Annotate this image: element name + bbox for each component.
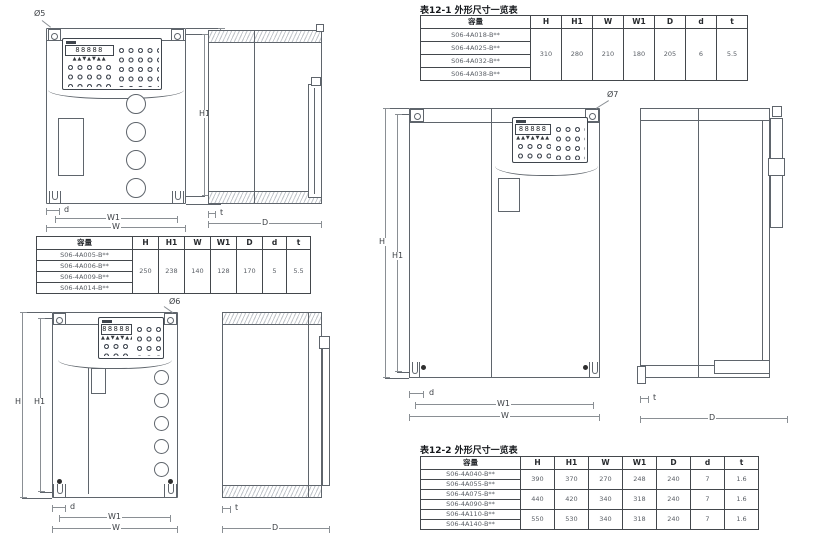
mounting-slot (409, 362, 420, 378)
column-header: 容量 (37, 237, 133, 250)
value-cell: 420 (555, 490, 589, 510)
keypad-buttons-right (134, 324, 161, 356)
value-cell: 205 (655, 29, 686, 81)
dim-label-d: d (428, 389, 435, 397)
seven-segment-display: 88888 (515, 124, 551, 135)
extension-line (40, 492, 54, 493)
back-tab (772, 106, 782, 117)
value-cell: 250 (133, 250, 159, 294)
cover-split-line (308, 312, 309, 498)
column-header: H1 (555, 457, 589, 470)
dim-label-w: W (111, 524, 121, 532)
value-cell: 370 (555, 470, 589, 490)
side-outline (640, 108, 770, 378)
value-cell: 340 (589, 490, 623, 510)
extension-line (397, 372, 409, 373)
dim-label-w: W (500, 412, 510, 420)
keypad-panel: 88888 ▲▲▼▲▼▲▲ (98, 317, 164, 359)
dim-label-t: t (652, 394, 657, 402)
value-cell: 128 (211, 250, 237, 294)
keypad-buttons-right (116, 45, 159, 87)
table-row: S06-4A110-B** 550 530 340 318 240 7 1.6 (421, 510, 759, 520)
manual-page: Ø5 88888 ▲▲▼▲▼▲▲ H1 H (0, 0, 820, 542)
model-cell: S06-4A040-B** (421, 470, 521, 480)
dim-label-depth: D (708, 414, 716, 422)
mounting-rail (308, 84, 322, 198)
top-band (209, 31, 321, 43)
table-row: S06-4A005-B** 250 238 140 128 170 5 5.5 (37, 250, 311, 261)
value-cell: 5 (263, 250, 287, 294)
value-cell: 440 (521, 490, 555, 510)
dimension-line-t (640, 398, 649, 399)
value-cell: 248 (623, 470, 657, 490)
extension-line (186, 196, 205, 197)
value-cell: 7 (691, 510, 725, 530)
value-cell: 5.5 (717, 29, 748, 81)
column-header: W (589, 457, 623, 470)
dim-label-d: d (69, 503, 76, 511)
mounting-slot (53, 484, 66, 498)
model-cell: S06-4A006-B** (37, 261, 133, 272)
rail-hook (319, 336, 330, 349)
value-cell: 240 (657, 510, 691, 530)
back-tab (316, 24, 324, 32)
value-cell: 270 (589, 470, 623, 490)
value-cell: 5.5 (287, 250, 311, 294)
value-cell: 210 (593, 29, 624, 81)
value-cell: 1.6 (725, 470, 759, 490)
rail-inner-line (314, 88, 315, 194)
knockout-hole (126, 150, 146, 170)
hole-diameter-label: Ø5 (33, 10, 46, 18)
keypad-brand-chip (516, 120, 526, 123)
extension-line (186, 28, 221, 29)
keypad-buttons-left (101, 341, 132, 356)
dim-label-h: H (14, 398, 22, 406)
dimension-table-small: 容量 H H1 W W1 D d t S06-4A005-B** 250 238… (36, 236, 311, 294)
back-panel-line (762, 120, 763, 366)
column-header: H1 (159, 237, 185, 250)
model-cell: S06-4A032-B** (421, 55, 531, 68)
keypad-panel: 88888 ▲▲▼▲▼▲▲ (512, 117, 588, 163)
column-header: H (133, 237, 159, 250)
column-header: t (725, 457, 759, 470)
dim-label-h1: H1 (33, 398, 46, 406)
cover-split-line (88, 368, 89, 494)
value-cell: 550 (521, 510, 555, 530)
dim-label-w1: W1 (106, 214, 121, 222)
column-header: H1 (562, 16, 593, 29)
dim-label-w: W (111, 223, 121, 231)
mounting-slot (164, 484, 177, 498)
value-cell: 240 (657, 490, 691, 510)
mounting-slot (49, 191, 61, 204)
model-cell: S06-4A055-B** (421, 480, 521, 490)
terminal-cover (498, 178, 520, 212)
bottom-band (223, 485, 321, 497)
knockout-hole (154, 462, 169, 477)
cover-split-line (698, 108, 699, 378)
model-cell: S06-4A005-B** (37, 250, 133, 261)
column-header: D (655, 16, 686, 29)
model-cell: S06-4A018-B** (421, 29, 531, 42)
screw-dot (421, 365, 426, 370)
dim-label-w1: W1 (107, 513, 122, 521)
value-cell: 310 (531, 29, 562, 81)
dimension-table-12-1: 容量 H H1 W W1 D d t S06-4A018-B** 310 280… (420, 15, 748, 81)
column-header: d (686, 16, 717, 29)
terminal-cover (58, 118, 84, 176)
bottom-step (714, 360, 770, 374)
value-cell: 1.6 (725, 510, 759, 530)
column-header: t (287, 237, 311, 250)
header-row: 容量 H H1 W W1 D d t (37, 237, 311, 250)
cover-split-line (491, 108, 492, 378)
terminal-cover (91, 368, 106, 394)
keypad-panel: 88888 ▲▲▼▲▼▲▲ (62, 38, 162, 90)
keypad-brand-chip (102, 320, 112, 323)
leader-line (596, 100, 609, 109)
column-header: W1 (211, 237, 237, 250)
screw-dot (583, 365, 588, 370)
column-header: t (717, 16, 748, 29)
column-header: d (263, 237, 287, 250)
header-row: 容量 H H1 W W1 D d t (421, 16, 748, 29)
side-outline (222, 312, 322, 498)
value-cell: 318 (623, 510, 657, 530)
model-cell: S06-4A009-B** (37, 272, 133, 283)
mounting-tab (171, 29, 184, 41)
hole-diameter-label: Ø7 (606, 91, 619, 99)
value-cell: 170 (237, 250, 263, 294)
leader-line (42, 20, 51, 28)
column-header: W1 (624, 16, 655, 29)
model-cell: S06-4A140-B** (421, 520, 521, 530)
dim-label-depth: D (261, 219, 269, 227)
knockout-hole (154, 370, 169, 385)
model-cell: S06-4A075-B** (421, 490, 521, 500)
dimension-line-d (46, 210, 60, 211)
table-row: S06-4A040-B** 390 370 270 248 240 7 1.6 (421, 470, 759, 480)
dim-label-d: d (63, 206, 70, 214)
knockout-hole (154, 416, 169, 431)
seven-segment-display: 88888 (65, 45, 114, 56)
column-header: W1 (623, 457, 657, 470)
knockout-hole (154, 439, 169, 454)
knockout-hole (126, 94, 146, 114)
extension-line (186, 204, 221, 205)
column-header: 容量 (421, 16, 531, 29)
mounting-tab (164, 313, 177, 325)
dimension-table-12-2: 容量 H H1 W W1 D d t S06-4A040-B** 390 370… (420, 456, 759, 530)
dim-label-t: t (234, 504, 239, 512)
keypad-brand-chip (66, 41, 76, 44)
value-cell: 7 (691, 490, 725, 510)
value-cell: 240 (657, 470, 691, 490)
table-row: S06-4A075-B** 440 420 340 318 240 7 1.6 (421, 490, 759, 500)
mounting-tab (410, 109, 424, 122)
extension-line (22, 498, 52, 499)
mounting-slot (589, 362, 600, 378)
value-cell: 140 (185, 250, 211, 294)
column-header: H (521, 457, 555, 470)
value-cell: 1.6 (725, 490, 759, 510)
rail-hook (311, 77, 321, 86)
dim-label-h: H (378, 238, 386, 246)
header-row: 容量 H H1 W W1 D d t (421, 457, 759, 470)
model-cell: S06-4A014-B** (37, 283, 133, 294)
value-cell: 180 (624, 29, 655, 81)
dimension-line-h (22, 312, 23, 498)
knockout-hole (126, 122, 146, 142)
dimension-line-h1 (397, 114, 398, 372)
dim-label-h1: H1 (391, 252, 404, 260)
extension-line (385, 378, 409, 379)
value-cell: 340 (589, 510, 623, 530)
model-cell: S06-4A090-B** (421, 500, 521, 510)
value-cell: 318 (623, 490, 657, 510)
top-band (641, 109, 769, 121)
mounting-tab (53, 313, 66, 325)
value-cell: 238 (159, 250, 185, 294)
value-cell: 530 (555, 510, 589, 530)
dim-label-t: t (219, 209, 224, 217)
keypad-buttons-left (65, 62, 114, 87)
keypad-buttons-left (515, 141, 551, 160)
column-header: W (185, 237, 211, 250)
table-title: 表12-2 外形尺寸一览表 (420, 443, 518, 456)
model-cell: S06-4A110-B** (421, 510, 521, 520)
side-outline (208, 30, 322, 204)
column-header: H (531, 16, 562, 29)
keypad-buttons-right (553, 124, 585, 160)
column-header: d (691, 457, 725, 470)
top-band (223, 313, 321, 325)
dimension-line-d (52, 507, 66, 508)
front-foot (637, 366, 646, 384)
column-header: D (237, 237, 263, 250)
bottom-band (209, 191, 321, 203)
cover-split-line (254, 30, 255, 204)
dim-label-depth: D (271, 524, 279, 532)
model-cell: S06-4A038-B** (421, 68, 531, 81)
dim-label-w1: W1 (496, 400, 511, 408)
mounting-slot (172, 191, 184, 204)
knockout-hole (126, 178, 146, 198)
mounting-tab (48, 29, 61, 41)
column-header: 容量 (421, 457, 521, 470)
value-cell: 7 (691, 470, 725, 490)
column-header: W (593, 16, 624, 29)
dimension-line-t (222, 508, 231, 509)
value-cell: 280 (562, 29, 593, 81)
value-cell: 6 (686, 29, 717, 81)
model-cell: S06-4A025-B** (421, 42, 531, 55)
knockout-hole (154, 393, 169, 408)
mounting-rail (322, 336, 330, 486)
column-header: D (657, 457, 691, 470)
value-cell: 390 (521, 470, 555, 490)
rail-hook (768, 158, 785, 176)
dimension-line-t (208, 213, 216, 214)
table-row: S06-4A018-B** 310 280 210 180 205 6 5.5 (421, 29, 748, 42)
hole-diameter-label: Ø6 (168, 298, 181, 306)
dimension-line-d (409, 393, 424, 394)
extension-line (22, 312, 52, 313)
seven-segment-display: 88888 (101, 324, 132, 335)
